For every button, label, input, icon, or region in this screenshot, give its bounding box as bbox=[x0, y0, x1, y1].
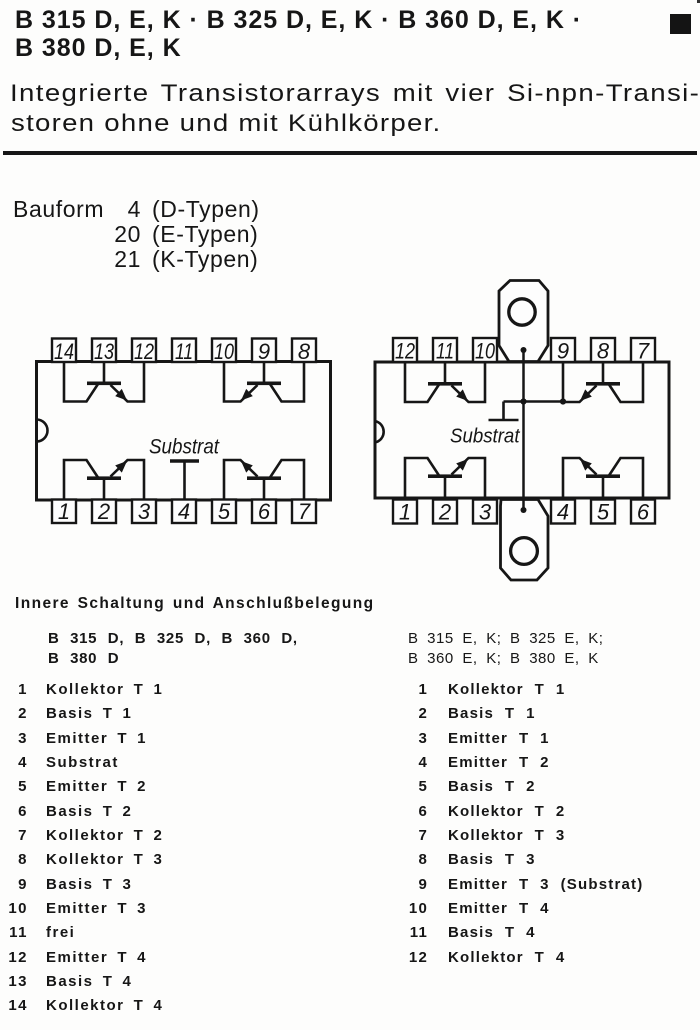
svg-text:8: 8 bbox=[298, 339, 311, 364]
svg-text:11: 11 bbox=[175, 339, 193, 364]
svg-text:12: 12 bbox=[134, 339, 154, 364]
svg-text:4: 4 bbox=[178, 499, 190, 524]
svg-text:1: 1 bbox=[58, 499, 70, 524]
svg-text:2: 2 bbox=[438, 500, 451, 525]
svg-text:12: 12 bbox=[395, 339, 415, 364]
svg-text:7: 7 bbox=[637, 339, 650, 364]
svg-text:10: 10 bbox=[214, 339, 235, 364]
svg-text:5: 5 bbox=[218, 499, 231, 524]
svg-text:2: 2 bbox=[97, 499, 110, 524]
svg-text:9: 9 bbox=[258, 339, 270, 364]
svg-text:4: 4 bbox=[557, 500, 569, 525]
svg-text:13: 13 bbox=[94, 339, 115, 364]
svg-text:7: 7 bbox=[298, 499, 311, 524]
svg-text:11: 11 bbox=[436, 339, 454, 364]
svg-text:3: 3 bbox=[479, 500, 492, 525]
svg-text:9: 9 bbox=[557, 339, 569, 364]
svg-text:6: 6 bbox=[637, 500, 650, 525]
svg-text:Substrat: Substrat bbox=[450, 426, 521, 448]
svg-text:10: 10 bbox=[475, 339, 496, 364]
svg-text:5: 5 bbox=[597, 500, 610, 525]
svg-text:1: 1 bbox=[399, 500, 411, 525]
svg-text:8: 8 bbox=[597, 339, 610, 364]
svg-text:6: 6 bbox=[258, 499, 271, 524]
svg-text:3: 3 bbox=[138, 499, 151, 524]
svg-text:Substrat: Substrat bbox=[149, 436, 220, 459]
svg-text:14: 14 bbox=[54, 339, 74, 364]
